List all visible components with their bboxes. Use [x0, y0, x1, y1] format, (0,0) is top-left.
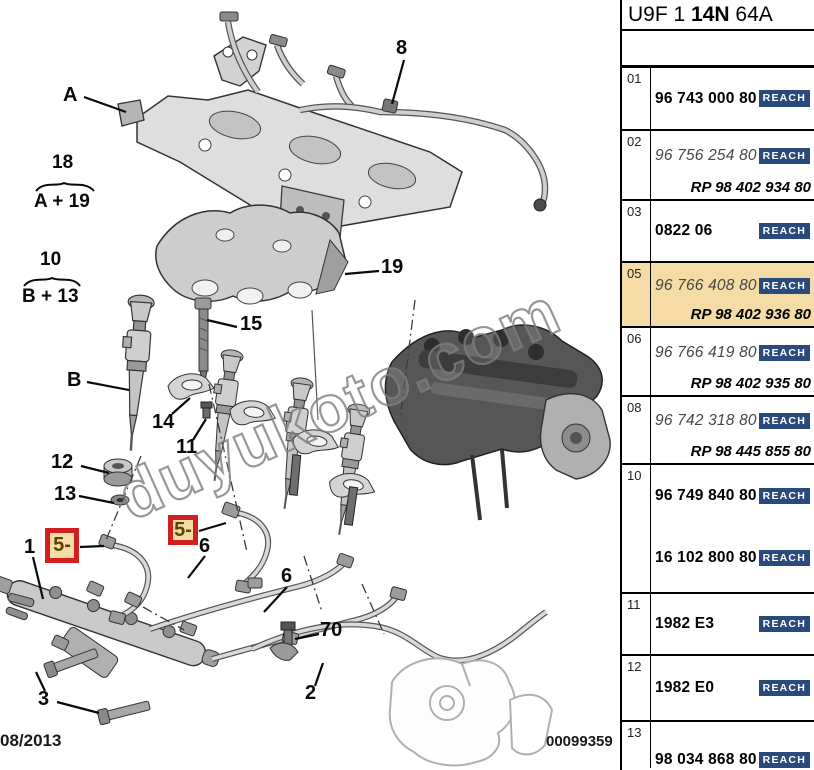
- table-row-08[interactable]: 08 96 742 318 80REACH RP 98 445 855 80: [622, 397, 814, 465]
- row-number: 08: [627, 400, 641, 415]
- callout-b: B: [67, 370, 81, 390]
- replacement-part-number: RP 98 402 935 80: [691, 375, 811, 392]
- callout-19: 19: [381, 257, 403, 277]
- row-number: 13: [627, 725, 641, 740]
- catalog-code-prefix: U9F 1: [628, 3, 691, 27]
- row-number: 05: [627, 266, 641, 281]
- catalog-code-bold: 14N: [691, 3, 730, 27]
- callout-70: 70: [320, 620, 342, 640]
- callout-18: 18: [52, 153, 73, 172]
- replacement-part-number: RP 98 402 934 80: [691, 179, 811, 196]
- catalog-code-suffix: 64A: [730, 3, 773, 27]
- part-number: 0822 06: [655, 222, 712, 240]
- catalog-code: U9F 1 14N 64A: [622, 0, 814, 31]
- row-number: 11: [627, 597, 641, 612]
- drawing-number: 00099359: [546, 733, 613, 750]
- row-number: 12: [627, 659, 641, 674]
- reach-badge[interactable]: REACH: [759, 148, 810, 165]
- part-number: 96 742 318 80: [655, 412, 757, 430]
- row-number: 03: [627, 204, 641, 219]
- row-number: 01: [627, 71, 641, 86]
- callout-5-box[interactable]: 5-: [168, 515, 198, 545]
- table-row-13[interactable]: 13 98 034 868 80REACH: [622, 722, 814, 768]
- reach-badge[interactable]: REACH: [759, 752, 810, 769]
- table-row-11[interactable]: 11 1982 E3REACH: [622, 594, 814, 656]
- date-stamp: 08/2013: [0, 731, 61, 751]
- table-row-03[interactable]: 03 0822 06REACH: [622, 201, 814, 263]
- table-row-02[interactable]: 02 96 756 254 80REACH RP 98 402 934 80: [622, 131, 814, 201]
- callout-12: 12: [51, 452, 73, 472]
- reach-badge[interactable]: REACH: [759, 616, 810, 633]
- exploded-diagram: duyukoto.com A 8 18 A + 19 10 B + 13 19 …: [0, 0, 620, 770]
- reach-badge[interactable]: REACH: [759, 223, 810, 240]
- part-injector-b: [115, 294, 154, 451]
- part-number: 96 749 840 80: [655, 487, 757, 505]
- part-number: 96 766 408 80: [655, 277, 757, 295]
- table-row-01[interactable]: 01 96 743 000 80REACH: [622, 68, 814, 131]
- part-number: 96 756 254 80: [655, 147, 757, 165]
- part-pump-sketch: [390, 658, 552, 765]
- part-11-stud: [201, 402, 212, 418]
- part-assembled-rack: [385, 325, 610, 520]
- row-number: 06: [627, 331, 641, 346]
- table-row-12[interactable]: 12 1982 E0REACH: [622, 656, 814, 722]
- row-number: 10: [627, 468, 641, 483]
- part-number: 16 102 800 80: [655, 549, 757, 567]
- reach-badge[interactable]: REACH: [759, 680, 810, 697]
- callout-6: 6: [281, 566, 292, 586]
- part-number: 96 743 000 80: [655, 90, 757, 108]
- callout-10: 10: [40, 250, 61, 269]
- callout-13: 13: [54, 484, 76, 504]
- row-number: 02: [627, 134, 641, 149]
- table-spacer: [622, 31, 814, 68]
- callout-15: 15: [240, 314, 262, 334]
- callout-group-a19: A + 19: [34, 192, 90, 211]
- part-15-bolt: [195, 298, 211, 381]
- part-1-fuel-rail: [0, 567, 224, 680]
- diagram-art: [0, 0, 620, 770]
- table-row-06[interactable]: 06 96 766 419 80REACH RP 98 402 935 80: [622, 328, 814, 397]
- callout-11: 11: [176, 437, 197, 457]
- parts-catalog-page: duyukoto.com A 8 18 A + 19 10 B + 13 19 …: [0, 0, 814, 770]
- callout-5-box[interactable]: 5-: [45, 528, 79, 563]
- part-number: 96 766 419 80: [655, 344, 757, 362]
- reach-badge[interactable]: REACH: [759, 550, 810, 567]
- callout-8: 8: [396, 38, 407, 58]
- callout-6: 6: [199, 536, 210, 556]
- callout-3: 3: [38, 689, 49, 709]
- callout-14: 14: [152, 412, 174, 432]
- part-number: 98 034 868 80: [655, 751, 757, 769]
- table-row-10[interactable]: 10 96 749 840 80REACH 16 102 800 80REACH: [622, 465, 814, 594]
- part-number: 1982 E0: [655, 679, 714, 697]
- callout-a: A: [63, 85, 77, 105]
- replacement-part-number: RP 98 445 855 80: [691, 443, 811, 460]
- callout-group-b13: B + 13: [22, 287, 79, 306]
- reach-badge[interactable]: REACH: [759, 90, 810, 107]
- part-number: 1982 E3: [655, 615, 714, 633]
- replacement-part-number: RP 98 402 936 80: [691, 306, 811, 323]
- reach-badge[interactable]: REACH: [759, 413, 810, 430]
- callout-1: 1: [24, 537, 35, 557]
- part-14-clamp: [168, 374, 214, 399]
- reach-badge[interactable]: REACH: [759, 278, 810, 295]
- reach-badge[interactable]: REACH: [759, 345, 810, 362]
- reach-badge[interactable]: REACH: [759, 488, 810, 505]
- callout-2: 2: [305, 683, 316, 703]
- table-row-05-highlighted[interactable]: 05 96 766 408 80REACH RP 98 402 936 80: [622, 263, 814, 328]
- parts-table: U9F 1 14N 64A 01 96 743 000 80REACH 02 9…: [620, 0, 814, 770]
